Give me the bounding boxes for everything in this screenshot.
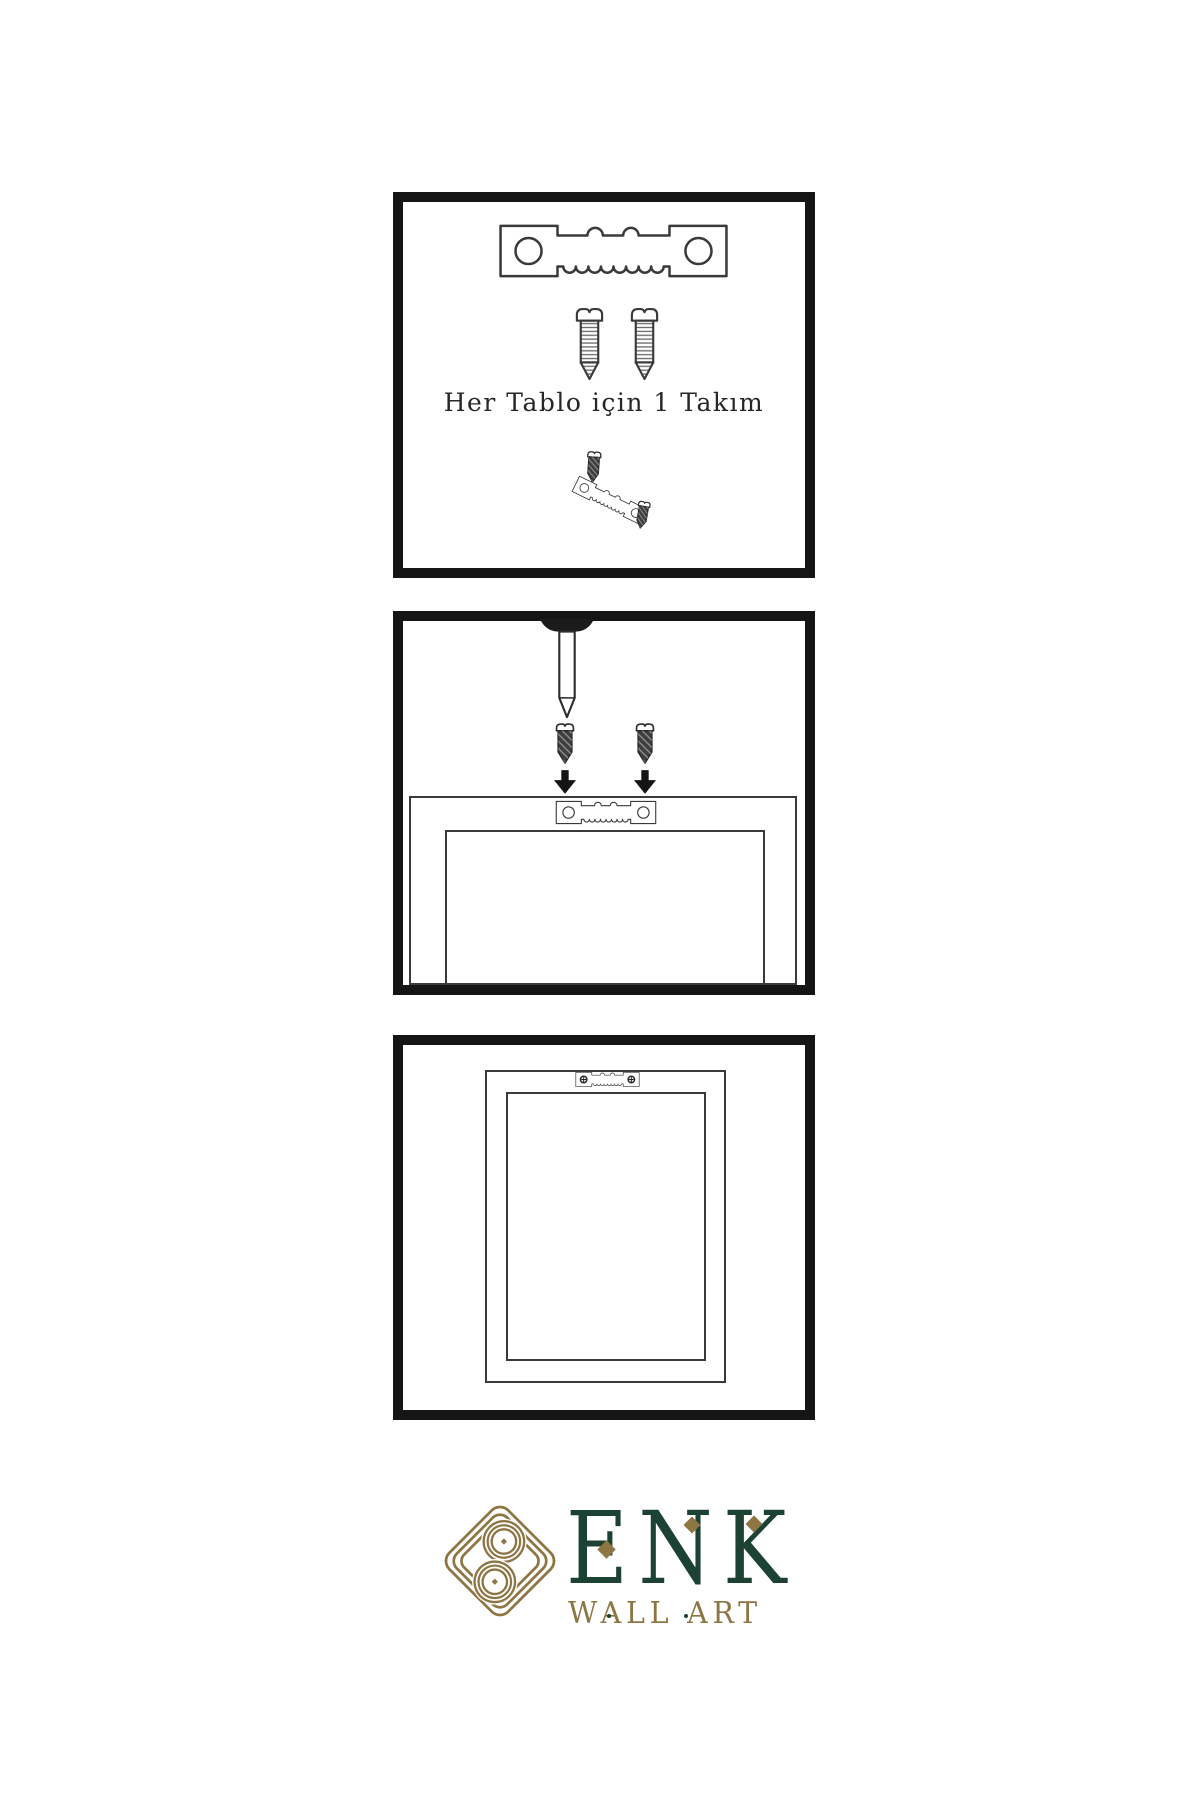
arrow-down-icon xyxy=(634,770,656,794)
brand-name: ENK xyxy=(566,1496,770,1606)
nail-icon xyxy=(540,619,594,721)
frame-inner-outline xyxy=(445,830,765,985)
sawtooth-hanger-icon xyxy=(555,800,657,825)
sawtooth-hanger-screwed-icon xyxy=(575,1071,640,1088)
screw-icon xyxy=(634,721,656,766)
subtitle-dot xyxy=(684,1614,688,1618)
knot-icon xyxy=(435,1492,565,1630)
screw-icon xyxy=(573,306,606,382)
brand-subtitle: WALL ART xyxy=(568,1596,762,1631)
kit-caption: Her Tablo için 1 Takım xyxy=(403,388,805,417)
frame-inner-outline xyxy=(506,1092,706,1361)
instruction-sheet: { "theme": { "page-bg": "#ffffff", "pane… xyxy=(0,0,1200,1800)
step-3-panel xyxy=(393,1035,815,1420)
step-2-panel xyxy=(393,611,815,995)
subtitle-dot xyxy=(607,1614,611,1618)
screw-icon xyxy=(554,721,576,766)
screw-icon xyxy=(628,306,661,382)
arrow-down-icon xyxy=(554,770,576,794)
sawtooth-hanger-icon xyxy=(497,223,730,279)
step-1-panel: Her Tablo için 1 Takım xyxy=(393,192,815,578)
